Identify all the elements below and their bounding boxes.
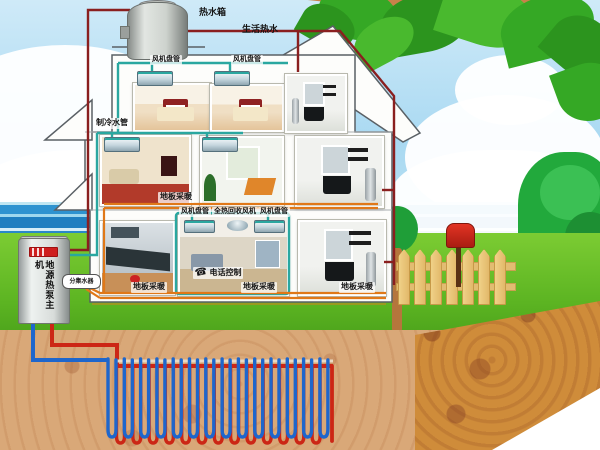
label-hot-water-tank: 热水箱 xyxy=(197,8,228,20)
label-fan-coil: 风机盘管 xyxy=(231,55,263,65)
heat-pump-label: 地源热泵主机 xyxy=(18,260,68,318)
tank-fitting xyxy=(120,26,130,39)
pipe-network xyxy=(0,0,600,450)
label-fan-coil: 风机盘管 xyxy=(258,207,290,217)
fan-coil-unit-icon xyxy=(184,220,215,233)
label-floor-heating: 地板采暖 xyxy=(241,282,277,293)
label-fan-coil: 风机盘管 xyxy=(179,207,211,217)
label-phone-control: ☎ 电话控制 xyxy=(193,267,243,279)
phone-icon: ☎ xyxy=(194,267,208,279)
chilled-water-pipes xyxy=(70,63,289,294)
fan-coil-unit-icon xyxy=(214,71,250,86)
label-floor-heating: 地板采暖 xyxy=(131,282,167,293)
fan-coil-unit-icon xyxy=(104,137,140,152)
label-heat-recovery-fan: 全热回收风机 xyxy=(212,207,258,217)
fan-coil-unit-icon xyxy=(254,220,285,233)
fan-coil-unit-icon xyxy=(137,71,173,86)
label-domestic-hot-water: 生活热水 xyxy=(240,25,280,37)
fan-coil-unit-icon xyxy=(202,137,238,152)
manifold-box: 分集水器 xyxy=(62,274,101,289)
ground-source-heat-pump-diagram: 地源热泵主机 分集水器 热水箱 生活热水 风机盘管 风机盘管 制冷水管 地板采暖… xyxy=(0,0,600,450)
label-chilled-water-pipe: 制冷水管 xyxy=(94,118,130,129)
heat-pump-brand-badge xyxy=(29,247,58,257)
ground-loop-return xyxy=(33,318,108,360)
label-fan-coil: 风机盘管 xyxy=(150,55,182,65)
label-floor-heating: 地板采暖 xyxy=(158,192,194,203)
ground-loop-u-tubes xyxy=(108,359,332,443)
label-floor-heating: 地板采暖 xyxy=(339,282,375,293)
hot-water-tank xyxy=(127,2,188,60)
phone-control-text: 电话控制 xyxy=(209,269,241,278)
